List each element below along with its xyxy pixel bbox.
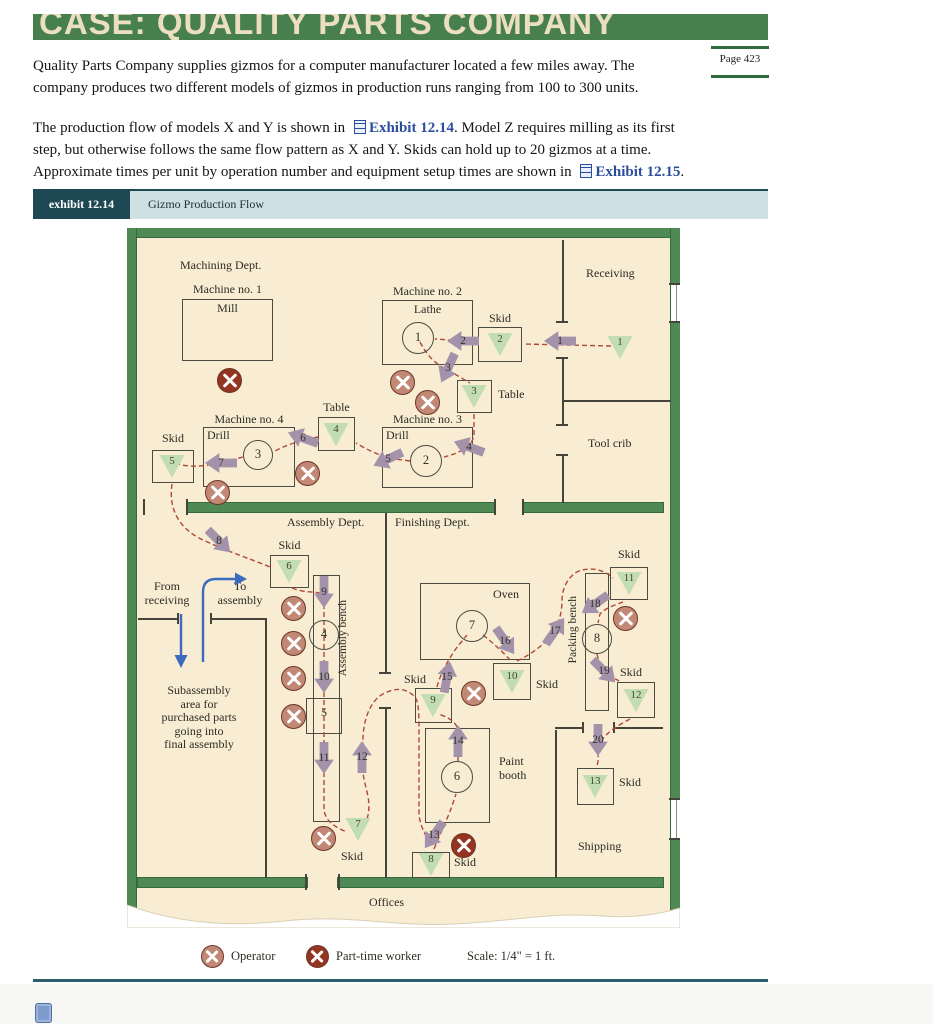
transport-number: 10 [308, 666, 340, 688]
transport-arrow: 1 [544, 330, 576, 352]
storage-triangle: 7 [345, 818, 371, 841]
door-tick [669, 838, 680, 840]
diagram-label: Subassembly area for purchased parts goi… [145, 684, 253, 752]
interior-wall [138, 618, 178, 620]
paragraph-2-line-3: Approximate times per unit by operation … [33, 161, 733, 183]
transport-number: 3 [432, 357, 464, 379]
part-time-worker-marker [451, 833, 476, 858]
storage-triangle: 5 [159, 455, 185, 478]
operation-circle: 3 [243, 440, 273, 470]
storage-triangle: 4 [323, 423, 349, 446]
diagram-label: Skid [620, 666, 642, 680]
paragraph-1-line-1: Quality Parts Company supplies gizmos fo… [33, 55, 703, 77]
transport-arrow: 4 [453, 436, 485, 458]
diagram-label: Drill [207, 429, 230, 443]
interior-wall [615, 727, 663, 729]
operator-marker [281, 596, 306, 621]
diagram-label: Machine no. 1 [182, 283, 273, 297]
door-tick [556, 321, 568, 323]
diagram-label: Drill [386, 429, 409, 443]
transport-arrow: 11 [308, 747, 340, 769]
green-wall [338, 878, 663, 887]
storage-number: 4 [323, 423, 349, 435]
diagram-label: Skid [610, 548, 648, 562]
door-tick [522, 499, 524, 515]
rotated-bench-label: Assembly bench [337, 600, 349, 676]
paragraph-2-line-1: The production flow of models X and Y is… [33, 117, 733, 139]
part-time-worker-marker [217, 368, 242, 393]
diagram-label: Mill [182, 302, 273, 316]
diagram-label: Tool crib [588, 437, 631, 451]
transport-arrow: 6 [287, 427, 319, 449]
transport-number: 18 [579, 593, 611, 615]
transport-arrow: 13 [418, 824, 450, 846]
operator-marker [461, 681, 486, 706]
transport-arrow: 3 [432, 357, 464, 379]
diagram-label: Skid [619, 776, 641, 790]
transport-arrow: 10 [308, 666, 340, 688]
part-time-legend-marker [306, 945, 329, 968]
storage-number: 6 [276, 560, 302, 572]
storage-number: 1 [607, 336, 633, 348]
storage-triangle: 10 [499, 670, 525, 693]
storage-triangle: 1 [607, 336, 633, 359]
diagram-label: Machine no. 4 [203, 413, 295, 427]
interior-wall [265, 618, 267, 878]
storage-triangle: 6 [276, 560, 302, 583]
transport-arrow: 19 [588, 660, 620, 682]
transport-number: 11 [308, 747, 340, 769]
transport-number: 8 [203, 530, 235, 552]
interior-wall [562, 358, 564, 425]
storage-number: 9 [420, 694, 446, 706]
operator-marker [295, 461, 320, 486]
door-tick [669, 321, 680, 323]
interior-wall [555, 730, 557, 878]
green-wall [187, 503, 495, 512]
diagram-label: Skid [454, 856, 476, 870]
transport-arrow: 9 [308, 581, 340, 603]
door-tick [305, 874, 307, 890]
diagram-label: Skid [536, 678, 558, 692]
transport-number: 7 [205, 452, 237, 474]
exhibit-12-15-link[interactable]: Exhibit 12.15 [595, 164, 680, 180]
door-tick [494, 499, 496, 515]
storage-number: 2 [487, 333, 513, 345]
exhibit-link-icon [580, 164, 592, 178]
interior-wall [562, 400, 671, 402]
diagram-label: Table [498, 388, 524, 402]
page: CASE: QUALITY PARTS COMPANY Page 423 Qua… [0, 0, 933, 1024]
storage-triangle: 9 [420, 694, 446, 717]
door-tick [669, 283, 680, 285]
storage-triangle: 3 [461, 385, 487, 408]
operation-circle: 7 [456, 610, 488, 642]
diagram-label: Skid [478, 312, 522, 326]
transport-arrow: 2 [447, 330, 479, 352]
transport-arrow: 17 [539, 620, 571, 642]
diagram-label: Skid [152, 432, 194, 446]
interior-wall [562, 240, 564, 322]
text-run: The production flow of models X and Y is… [33, 120, 349, 136]
transport-number: 12 [346, 746, 378, 768]
diagram-label: Skid [270, 539, 309, 553]
operator-marker [390, 370, 415, 395]
transport-arrow: 20 [582, 729, 614, 751]
green-wall [127, 228, 680, 237]
operator-marker [415, 390, 440, 415]
transport-number: 15 [431, 666, 463, 688]
bottom-rule [33, 979, 768, 982]
transport-number: 1 [544, 330, 576, 352]
transport-arrow: 7 [205, 452, 237, 474]
transport-arrow: 14 [442, 730, 474, 752]
text-run: . [680, 164, 684, 180]
dock-door-line [676, 800, 677, 838]
paragraph-2-line-2: step, but otherwise follows the same flo… [33, 139, 733, 161]
diagram-label: Finishing Dept. [395, 516, 470, 530]
door-tick [177, 613, 179, 624]
transport-arrow: 8 [203, 530, 235, 552]
door-tick [379, 707, 391, 709]
operation-circle: 2 [410, 445, 442, 477]
transport-number: 20 [582, 729, 614, 751]
transport-number: 5 [372, 448, 404, 470]
diagram-label: Machine no. 2 [382, 285, 473, 299]
storage-triangle: 8 [418, 853, 444, 876]
exhibit-12-14-link[interactable]: Exhibit 12.14 [369, 120, 454, 136]
operator-legend-label: Operator [231, 949, 275, 964]
diagram-label: Receiving [586, 267, 635, 281]
transport-number: 6 [287, 427, 319, 449]
text-run: Approximate times per unit by operation … [33, 164, 575, 180]
diagram-label: Oven [493, 588, 519, 602]
diagram-label: Offices [369, 896, 404, 910]
transport-number: 14 [442, 730, 474, 752]
storage-number: 12 [623, 689, 649, 701]
door-tick [186, 499, 188, 515]
door-tick [556, 357, 568, 359]
case-title-bar: CASE: QUALITY PARTS COMPANY [33, 14, 768, 40]
text-run: . Model Z requires milling as its first [454, 120, 675, 136]
interior-wall [562, 455, 564, 503]
transport-number: 9 [308, 581, 340, 603]
diagram-label: Machining Dept. [180, 259, 261, 273]
storage-number: 8 [418, 853, 444, 865]
door-tick [669, 798, 680, 800]
storage-number: 3 [461, 385, 487, 397]
storage-triangle: 12 [623, 689, 649, 712]
storage-triangle: 2 [487, 333, 513, 356]
scale-label: Scale: 1/4" = 1 ft. [467, 949, 555, 964]
door-tick [379, 672, 391, 674]
diagram-label: Skid [341, 850, 363, 864]
diagram-label: Table [318, 401, 355, 415]
storage-triangle: 11 [616, 572, 642, 595]
green-wall [127, 228, 136, 918]
door-tick [338, 874, 340, 890]
transport-number: 2 [447, 330, 479, 352]
diagram-label: Skid [404, 673, 426, 687]
diagram-label: Shipping [578, 840, 621, 854]
part-time-legend-label: Part-time worker [336, 949, 421, 964]
transport-number: 13 [418, 824, 450, 846]
storage-number: 13 [582, 775, 608, 787]
transport-number: 17 [539, 620, 571, 642]
operator-marker [311, 826, 336, 851]
diagram-label: From receiving [137, 580, 197, 607]
transport-number: 19 [588, 660, 620, 682]
door-tick [556, 454, 568, 456]
operation-circle: 4 [309, 620, 339, 650]
transport-number: 16 [489, 630, 521, 652]
storage-number: 11 [616, 572, 642, 584]
paragraph-2: The production flow of models X and Y is… [33, 117, 733, 183]
transport-number: 4 [453, 436, 485, 458]
storage-triangle: 13 [582, 775, 608, 798]
operation-circle: 6 [441, 761, 473, 793]
diagram-label: Machine no. 3 [382, 413, 473, 427]
operator-marker [613, 606, 638, 631]
footer-band [0, 984, 933, 1024]
transport-arrow: 12 [346, 746, 378, 768]
diagram-label: Paint booth [499, 755, 526, 782]
storage-number: 7 [345, 818, 371, 830]
transport-arrow: 15 [431, 666, 463, 688]
exhibit-title: Gizmo Production Flow [130, 191, 264, 219]
dock-door-line [676, 285, 677, 321]
case-title: CASE: QUALITY PARTS COMPANY [39, 14, 768, 40]
interior-wall [210, 618, 265, 620]
exhibit-tag: exhibit 12.14 [33, 191, 130, 219]
operator-legend-marker [201, 945, 224, 968]
interior-wall [555, 727, 583, 729]
paragraph-1-line-2: company produces two different models of… [33, 77, 703, 99]
facility-layout-diagram: Machining Dept.Machine no. 1MillReceivin… [127, 228, 680, 928]
operator-marker [281, 704, 306, 729]
door-tick [556, 424, 568, 426]
storage-number: 5 [159, 455, 185, 467]
diagram-label: To assembly [211, 580, 269, 607]
interior-wall [385, 513, 387, 673]
diagram-label: Lathe [382, 303, 473, 317]
transport-arrow: 5 [372, 448, 404, 470]
paragraph-1: Quality Parts Company supplies gizmos fo… [33, 55, 703, 99]
diagram-label: 5 [306, 706, 342, 720]
green-wall [523, 503, 663, 512]
operator-marker [281, 666, 306, 691]
exhibit-band: exhibit 12.14 Gizmo Production Flow [33, 189, 768, 219]
door-tick [143, 499, 145, 515]
door-tick [210, 613, 212, 624]
operation-circle: 8 [582, 624, 612, 654]
diagram-label: Assembly Dept. [287, 516, 364, 530]
document-icon[interactable] [35, 1003, 52, 1023]
transport-arrow: 16 [489, 630, 521, 652]
transport-arrow: 18 [579, 593, 611, 615]
page-number-badge: Page 423 [711, 46, 769, 78]
exhibit-link-icon [354, 120, 366, 134]
operation-circle: 1 [402, 322, 434, 354]
operator-marker [205, 480, 230, 505]
storage-number: 10 [499, 670, 525, 682]
operator-marker [281, 631, 306, 656]
green-wall [138, 878, 307, 887]
interior-wall [385, 708, 387, 878]
